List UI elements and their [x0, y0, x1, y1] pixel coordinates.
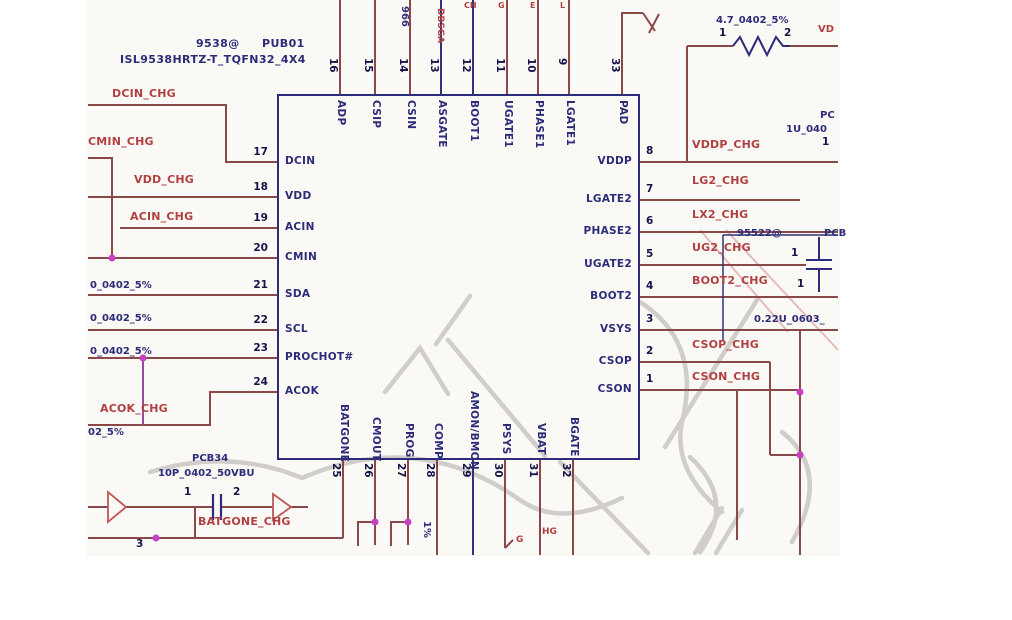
pin-name-VSYS: VSYS — [520, 324, 632, 336]
pin-name-PAD: PAD — [616, 100, 628, 124]
component-label-9: 0.22U_0603_ — [754, 314, 825, 325]
component-pin-ref-3: 1 — [791, 248, 798, 260]
component-label-10: PC — [820, 110, 835, 121]
pin-name-CSIN: CSIN — [404, 100, 416, 129]
pin-number-1: 1 — [646, 374, 653, 386]
pin-name-PROCHOT#: PROCHOT# — [285, 352, 354, 364]
net-label-CSOP_CHG: CSOP_CHG — [692, 339, 759, 351]
component-pin-ref-7: 3 — [136, 539, 143, 551]
pin-number-5: 5 — [646, 249, 653, 261]
component-label-12: 966 — [399, 6, 410, 27]
pin-number-8: 8 — [646, 146, 653, 158]
pin-number-18: 18 — [230, 182, 268, 194]
component-label-6: 4.7_0402_5% — [716, 15, 789, 26]
pin-number-2: 2 — [646, 346, 653, 358]
ic-designator-label: PUB01 — [262, 38, 305, 50]
net-label-BATGONE_CHG: BATGONE_CHG — [198, 516, 291, 528]
pin-name-UGATE2: UGATE2 — [520, 259, 632, 271]
component-label-7: 95522@ — [737, 228, 782, 239]
pin-number-19: 19 — [230, 213, 268, 225]
net-label-BOOT2_CHG: BOOT2_CHG — [692, 275, 768, 287]
pin-number-13: 13 — [427, 58, 439, 73]
pin-name-PROG: PROG — [402, 423, 414, 458]
net-label-VDDP_CHG: VDDP_CHG — [692, 139, 760, 151]
pin-number-30: 30 — [491, 463, 503, 478]
net-label-LX2_CHG: LX2_CHG — [692, 209, 748, 221]
pin-number-10: 10 — [524, 58, 536, 73]
net-fragment-2: G — [498, 2, 505, 11]
resistor-4.7ohm — [733, 37, 790, 55]
pin-name-AMON/BMON: AMON/BMON — [467, 391, 479, 470]
component-label-1: 0_0402_5% — [90, 313, 152, 324]
net-fragment-5: VD — [818, 24, 834, 35]
pin-number-20: 20 — [230, 243, 268, 255]
pin-name-ACIN: ACIN — [285, 222, 315, 234]
pin-name-CSIP: CSIP — [369, 100, 381, 128]
net-label-CSON_CHG: CSON_CHG — [692, 371, 760, 383]
net-fragment-1: CH — [464, 2, 477, 11]
pin-number-32: 32 — [559, 463, 571, 478]
pin-name-PSYS: PSYS — [499, 423, 511, 455]
net-fragment-4: L — [560, 2, 565, 11]
pin-number-28: 28 — [423, 463, 435, 478]
component-pin-ref-1: 2 — [784, 28, 791, 40]
pin-number-31: 31 — [526, 463, 538, 478]
component-label-3: 02_5% — [88, 427, 124, 438]
ic-ref-label: 9538@ — [196, 38, 240, 50]
net-label-CMIN_CHG: CMIN_CHG — [88, 136, 154, 148]
component-label-2: 0_0402_5% — [90, 346, 152, 357]
component-pin-ref-0: 1 — [719, 28, 726, 40]
pin-number-3: 3 — [646, 314, 653, 326]
pin-name-BGATE: BGATE — [567, 417, 579, 457]
pin-number-23: 23 — [230, 343, 268, 355]
pin-name-VDDP: VDDP — [520, 156, 632, 168]
pin-name-CMOUT: CMOUT — [369, 417, 381, 461]
pin-number-24: 24 — [230, 377, 268, 389]
pin-name-LGATE1: LGATE1 — [563, 100, 575, 146]
pin-name-COMP: COMP — [431, 423, 443, 459]
component-pin-ref-6: 2 — [233, 487, 240, 499]
pin-name-ADP: ADP — [334, 100, 346, 125]
net-label-DCIN_CHG: DCIN_CHG — [112, 88, 176, 100]
net-label-ACOK_CHG: ACOK_CHG — [100, 403, 168, 415]
pin-name-ASGATE: ASGATE — [435, 100, 447, 148]
net-label-ACIN_CHG: ACIN_CHG — [130, 211, 193, 223]
component-pin-ref-2: 1 — [822, 137, 829, 149]
component-label-4: PCB34 — [192, 453, 228, 464]
pin-number-11: 11 — [493, 58, 505, 73]
pin-number-21: 21 — [230, 280, 268, 292]
pin-name-DCIN: DCIN — [285, 156, 315, 168]
pin-name-UGATE1: UGATE1 — [501, 100, 513, 148]
pin-name-SCL: SCL — [285, 324, 308, 336]
pin-name-VDD: VDD — [285, 191, 311, 203]
component-label-8: PCB — [824, 228, 846, 239]
component-label-5: 10P_0402_50VBU — [158, 468, 254, 479]
pin-name-PHASE2: PHASE2 — [520, 226, 632, 238]
component-pin-ref-5: 1 — [184, 487, 191, 499]
pin-name-BATGONE: BATGONE — [337, 404, 349, 462]
component-label-11: 1U_040 — [786, 124, 827, 135]
pin-name-ACOK: ACOK — [285, 386, 319, 398]
pin-number-15: 15 — [361, 58, 373, 73]
pin-number-33: 33 — [608, 58, 620, 73]
pin-number-25: 25 — [329, 463, 341, 478]
net-fragment-7: HG — [542, 528, 557, 538]
pin-name-LGATE2: LGATE2 — [520, 194, 632, 206]
pin-number-17: 17 — [230, 147, 268, 159]
ic-part-number-label: ISL9538HRTZ-T_TQFN32_4X4 — [120, 54, 306, 66]
pin-number-12: 12 — [459, 58, 471, 73]
component-label-13: 1% — [421, 521, 432, 538]
net-fragment-3: E — [530, 2, 535, 11]
pin-number-27: 27 — [394, 463, 406, 478]
net-fragment-6: G — [516, 536, 523, 546]
net-label-LG2_CHG: LG2_CHG — [692, 175, 749, 187]
pin-number-22: 22 — [230, 315, 268, 327]
pin-number-7: 7 — [646, 184, 653, 196]
pin-name-BOOT1: BOOT1 — [467, 100, 479, 142]
pin-name-CSON: CSON — [520, 384, 632, 396]
capacitor-right — [806, 237, 832, 292]
net-label-VDD_CHG: VDD_CHG — [134, 174, 194, 186]
component-pin-ref-4: 1 — [797, 279, 804, 291]
ic-isl9538-body — [277, 94, 640, 460]
net-fragment-0: DBSGA — [434, 8, 444, 43]
pin-name-CMIN: CMIN — [285, 252, 317, 264]
pin-name-PHASE1: PHASE1 — [532, 100, 544, 148]
pin-number-16: 16 — [326, 58, 338, 73]
pin-name-VBAT: VBAT — [534, 423, 546, 455]
pin-number-6: 6 — [646, 216, 653, 228]
pin-number-26: 26 — [361, 463, 373, 478]
pin-name-BOOT2: BOOT2 — [520, 291, 632, 303]
schematic-screenshot: 9538@ PUB01 ISL9538HRTZ-T_TQFN32_4X4 17D… — [0, 0, 1012, 620]
net-label-UG2_CHG: UG2_CHG — [692, 242, 751, 254]
pin-number-4: 4 — [646, 281, 653, 293]
pin-number-9: 9 — [555, 58, 567, 65]
component-label-0: 0_0402_5% — [90, 280, 152, 291]
pin-number-14: 14 — [396, 58, 408, 73]
pin-name-CSOP: CSOP — [520, 356, 632, 368]
pin-name-SDA: SDA — [285, 289, 310, 301]
